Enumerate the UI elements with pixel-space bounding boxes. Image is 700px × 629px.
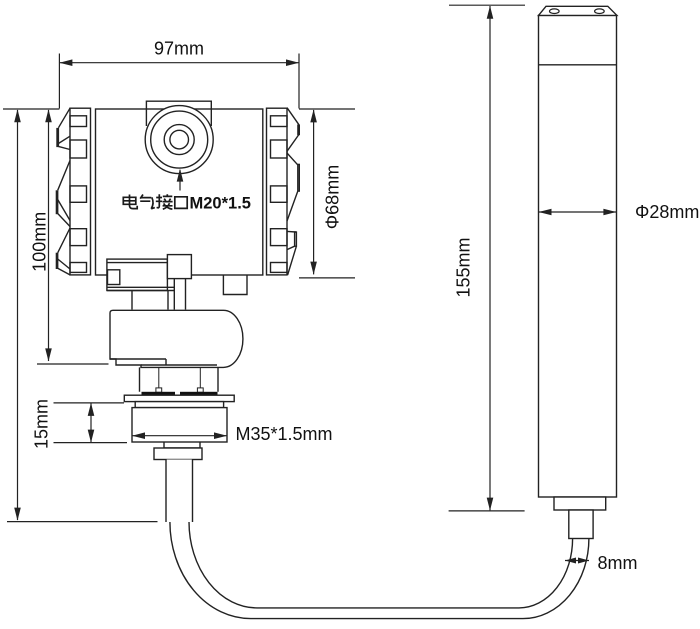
svg-text:Φ68mm: Φ68mm [323,165,343,229]
svg-text:97mm: 97mm [154,39,204,59]
svg-text:8mm: 8mm [598,553,638,573]
svg-text:Φ28mm: Φ28mm [635,202,699,222]
svg-text:M35*1.5mm: M35*1.5mm [236,424,333,444]
svg-text:155mm: 155mm [454,237,474,297]
svg-text:15mm: 15mm [32,399,52,449]
svg-text:M20*1.5: M20*1.5 [190,195,251,213]
svg-text:100mm: 100mm [30,212,50,272]
